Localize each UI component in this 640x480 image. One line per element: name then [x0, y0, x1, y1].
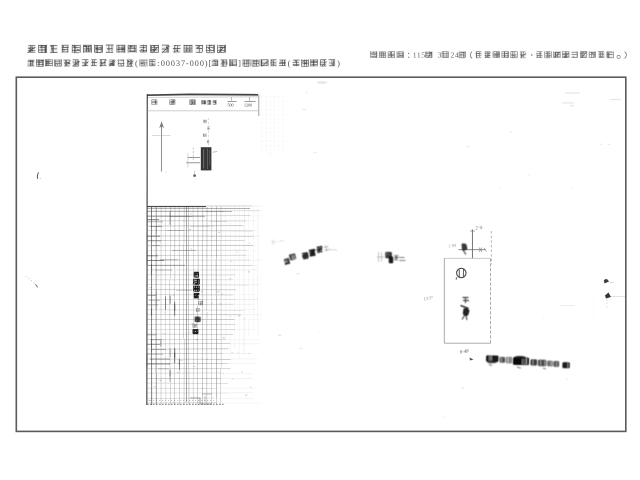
svg-text:): ): [337, 59, 340, 68]
svg-text:24: 24: [451, 51, 459, 60]
svg-text:(: (: [135, 59, 138, 68]
svg-text:1200: 1200: [244, 102, 252, 107]
svg-text:]: ]: [238, 59, 241, 68]
svg-text:(: (: [288, 59, 291, 68]
svg-text:500: 500: [228, 102, 234, 107]
svg-text:1·94: 1·94: [448, 243, 457, 249]
svg-text:2·0·: 2·0·: [475, 226, 484, 232]
svg-text::00037-000)[: :00037-000)[: [158, 59, 212, 68]
svg-text:115: 115: [413, 51, 425, 60]
svg-text:3: 3: [438, 51, 442, 60]
svg-text:1: 1: [231, 97, 233, 102]
svg-text:1: 1: [249, 97, 251, 102]
